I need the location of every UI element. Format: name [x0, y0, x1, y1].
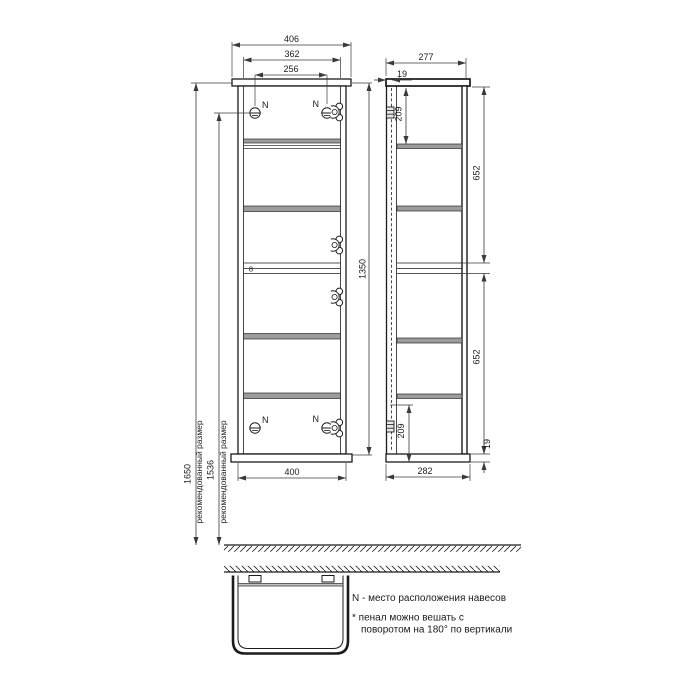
hanger-tab — [249, 576, 261, 583]
front-view: 8 N N N N — [231, 79, 352, 462]
hanger-screw-icon — [322, 423, 332, 433]
dim-height: 1350 — [358, 259, 368, 279]
front-bottom-cap — [231, 454, 352, 462]
dim-recommended-2-value: 1536 — [206, 460, 216, 480]
bottom-view — [224, 566, 500, 654]
dim-depth-bottom: 282 — [417, 466, 432, 476]
dim-divider-thickness: 8 — [249, 265, 253, 274]
dim-recommended-2-label: рекомендованный размер — [218, 420, 228, 524]
bottom-view-back-panel — [238, 584, 343, 587]
dim-recommended-1-value: 1650 — [183, 464, 193, 484]
wall-hatching — [224, 566, 500, 572]
note-hangers: N - место расположения навесов — [352, 593, 506, 604]
floor-hatching — [224, 546, 521, 552]
hanger-mark-label: N — [262, 415, 269, 425]
wall-line — [224, 566, 500, 572]
side-door-edge — [462, 86, 467, 454]
dim-back-offset: 19 — [397, 69, 407, 79]
dim-hanger-from-top: 209 — [394, 106, 404, 121]
dim-recommended-1-label: рекомендованный размер — [194, 420, 204, 524]
side-shelves — [397, 144, 462, 399]
dim-section-lower: 652 — [472, 349, 482, 364]
dim-cap-thickness: 19 — [482, 439, 492, 449]
hanger-screw-icon — [322, 108, 332, 118]
side-hanger-bracket — [387, 421, 395, 432]
dim-width-bottom: 400 — [284, 467, 299, 477]
cabinet-technical-drawing: 8 N N N N 406 362 256 — [0, 0, 700, 700]
floor-line — [224, 545, 521, 552]
dim-section-upper: 652 — [472, 165, 482, 180]
hanger-mark-label: N — [313, 99, 320, 109]
hanger-screw-icon — [250, 423, 260, 433]
side-view — [386, 79, 470, 462]
note-rotate-line1: * пенал можно вешать с — [352, 613, 464, 624]
dim-depth-top: 277 — [418, 52, 433, 62]
hanger-mark-label: N — [262, 100, 269, 110]
dim-width-inner: 362 — [284, 49, 299, 59]
note-rotate-line2: поворотом на 180° по вертикали — [361, 625, 512, 636]
bottom-view-outline — [233, 576, 348, 654]
front-top-cap — [232, 79, 351, 86]
dim-hanger-from-bottom: 209 — [396, 423, 406, 438]
dim-width-overall: 406 — [284, 34, 299, 44]
side-bottom-cap — [386, 454, 470, 462]
hanger-screw-icon — [250, 108, 260, 118]
hanger-mark-label: N — [313, 414, 320, 424]
notes: N - место расположения навесов * пенал м… — [352, 593, 512, 636]
hanger-tab — [322, 576, 334, 583]
dim-hanger-spacing: 256 — [283, 64, 298, 74]
